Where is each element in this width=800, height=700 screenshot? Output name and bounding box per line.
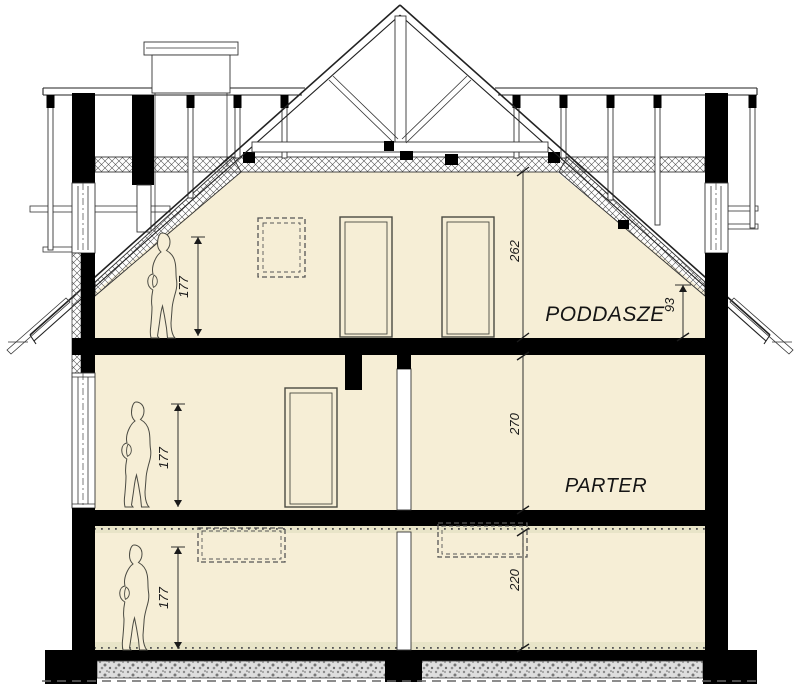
left-upper-window — [72, 183, 95, 253]
attic-label: PODDASZE — [545, 303, 665, 326]
right-footing — [703, 650, 757, 684]
left-footing — [45, 650, 97, 684]
ground-floor-slab — [72, 510, 728, 526]
ground-floor-label: PARTER — [565, 475, 647, 497]
dim-text-177-basement: 177 — [156, 586, 171, 608]
door-lintel — [345, 355, 362, 390]
thick-post — [132, 95, 154, 185]
center-footing — [385, 650, 422, 682]
dim-text-262: 262 — [507, 239, 522, 262]
dim-text-177-ground: 177 — [156, 446, 171, 468]
right-wall — [705, 93, 728, 661]
left-fascia-board — [7, 298, 70, 354]
ground-floor-partition — [397, 369, 411, 510]
ground-floor-door — [285, 388, 337, 507]
attic-floor-slab — [72, 338, 728, 355]
basement-partition — [397, 532, 411, 650]
tie-beam — [252, 142, 548, 152]
left-wall — [72, 93, 95, 661]
house-cross-section-drawing: 262 93 270 220 177 177 177 — [0, 0, 800, 700]
attic-door-left — [340, 217, 392, 337]
king-post — [395, 16, 406, 142]
attic-door-right — [442, 217, 494, 337]
right-upper-window — [705, 183, 728, 253]
dim-text-270: 270 — [507, 412, 522, 435]
right-fascia-board — [730, 298, 793, 354]
dim-text-220: 220 — [507, 568, 522, 591]
dim-text-177-attic: 177 — [176, 275, 191, 297]
left-ground-floor-window — [72, 373, 95, 508]
